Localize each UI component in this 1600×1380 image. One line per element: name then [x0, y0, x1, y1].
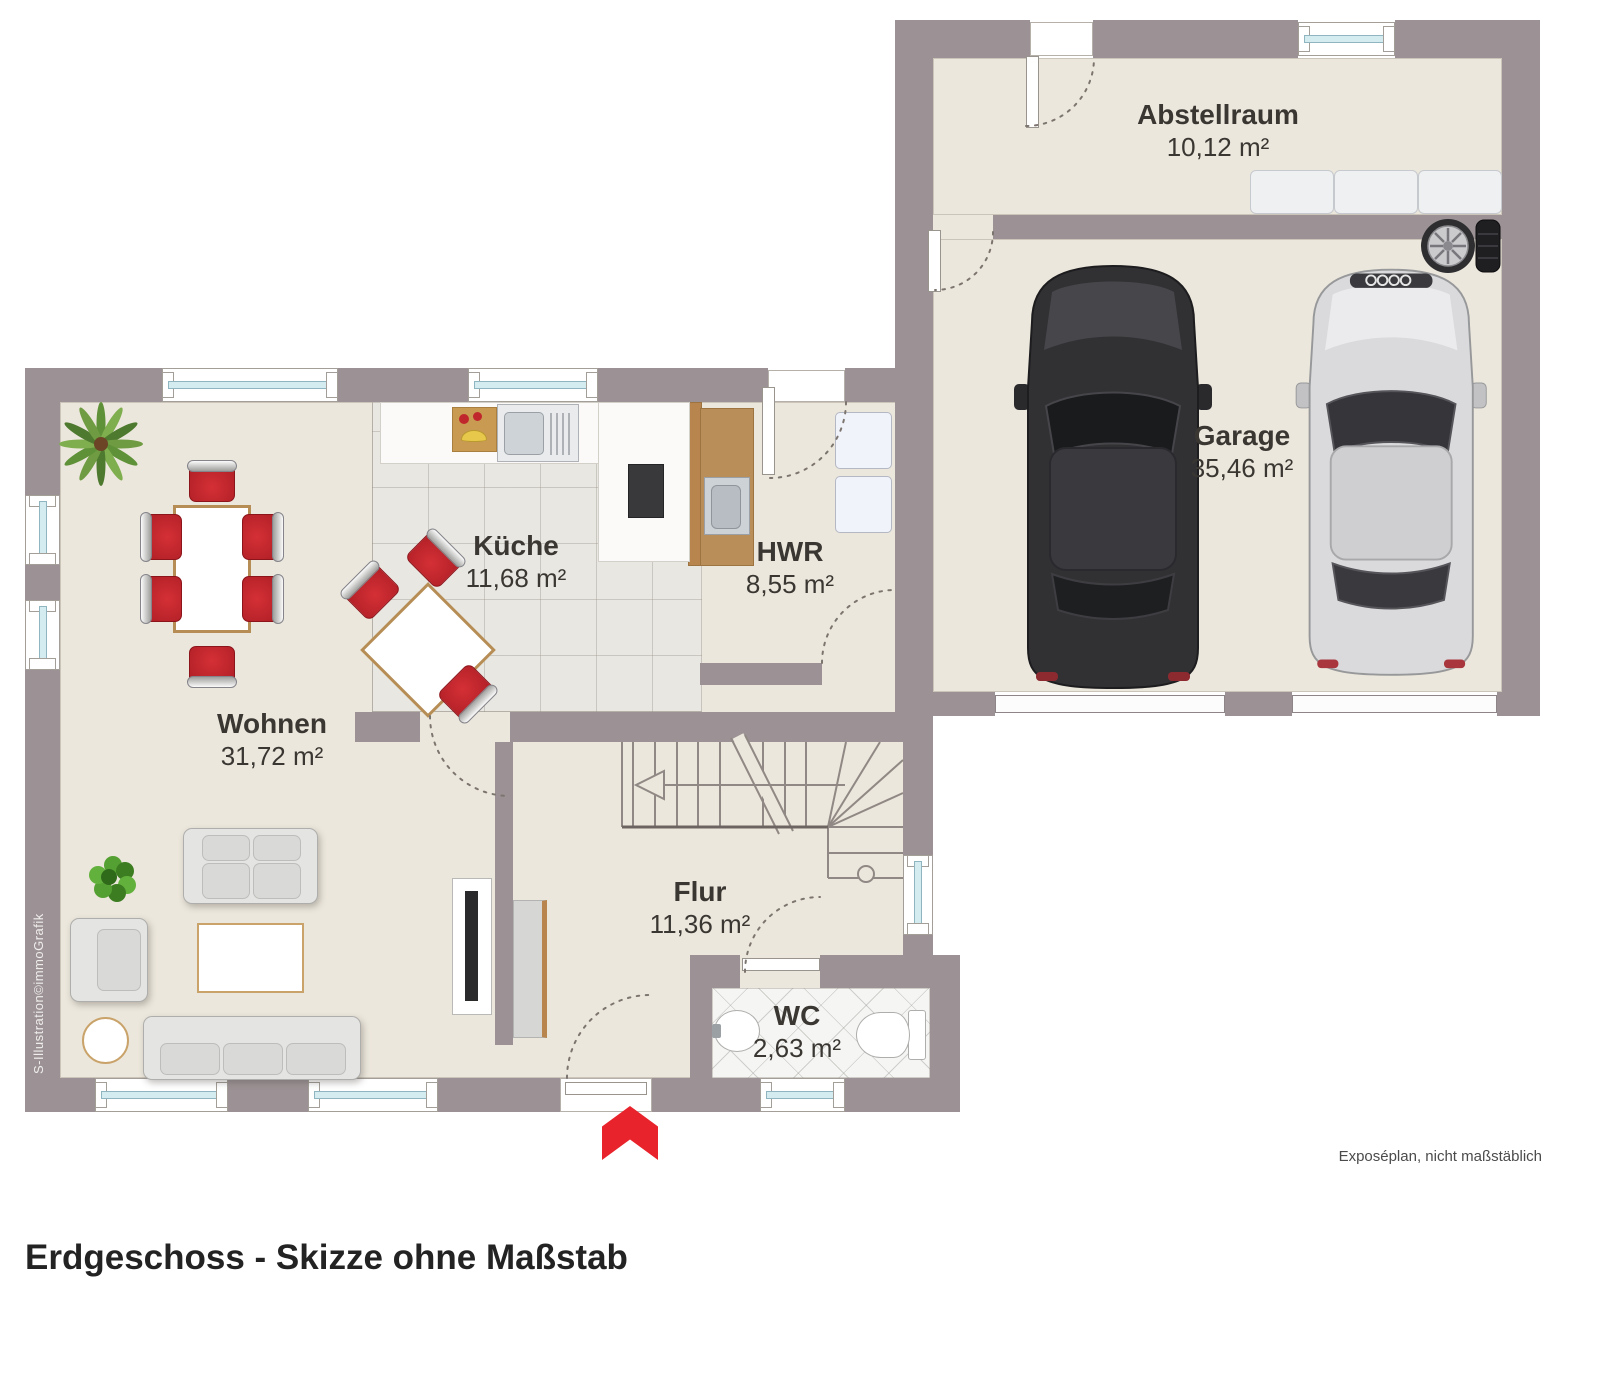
sofa-cushion: [253, 863, 301, 899]
coffee-table: [197, 923, 304, 993]
tv: [465, 891, 478, 1001]
drainboard-line: [550, 413, 552, 455]
dryer: [835, 476, 892, 533]
door-leaf-abstellraum: [1026, 56, 1039, 128]
wall: [25, 565, 60, 600]
dining-table: [173, 505, 251, 633]
room-name: Abstellraum: [1137, 98, 1299, 132]
room-label-wohnen: Wohnen 31,72 m²: [217, 707, 327, 773]
wall: [712, 955, 740, 988]
sink-bowl: [504, 412, 544, 455]
window-wohnen-left-2: [25, 600, 60, 670]
window-flur: [903, 855, 933, 935]
room-label-abstellraum: Abstellraum 10,12 m²: [1137, 98, 1299, 164]
room-label-hwr: HWR 8,55 m²: [746, 535, 834, 601]
window-wohnen-left-1: [25, 495, 60, 565]
sofa-cushion: [286, 1043, 346, 1075]
room-area: 11,68 m²: [466, 563, 567, 595]
banana: [461, 430, 487, 442]
hwr-sink: [704, 477, 750, 535]
room-name: Küche: [466, 529, 567, 563]
room-name: HWR: [746, 535, 834, 569]
shelf-box: [1418, 170, 1502, 214]
drainboard-line: [568, 413, 570, 455]
wall: [820, 955, 945, 988]
stove: [628, 464, 664, 518]
dining-chair: [189, 464, 235, 502]
sofa-three-seat: [143, 1016, 361, 1080]
wall: [25, 368, 60, 495]
room-area: 2,63 m²: [753, 1033, 841, 1065]
tomato: [459, 414, 469, 424]
window-wohnen-bottom-2: [308, 1078, 438, 1112]
page-title: Erdgeschoss - Skizze ohne Maßstab: [25, 1238, 628, 1278]
room-name: Wohnen: [217, 707, 327, 741]
wall: [845, 368, 933, 402]
toilet-bowl: [856, 1012, 910, 1058]
dining-chair: [242, 576, 280, 622]
window-wc: [760, 1078, 845, 1112]
hwr-sink-bowl: [711, 485, 741, 529]
sofa-two-seat: [183, 828, 318, 904]
door-leaf-hwr: [762, 387, 775, 475]
hall-cabinet: [513, 900, 547, 1038]
wall: [903, 935, 933, 955]
side-table: [82, 1017, 129, 1064]
drainboard-line: [562, 413, 564, 455]
door-leaf-garage: [928, 230, 941, 292]
cutting-board: [452, 407, 497, 452]
window-wohnen-top: [162, 368, 338, 402]
window-kueche: [468, 368, 598, 402]
room-area: 11,36 m²: [650, 909, 751, 941]
room-label-flur: Flur 11,36 m²: [650, 875, 751, 941]
tomato: [473, 412, 482, 421]
room-label-wc: WC 2,63 m²: [753, 999, 841, 1065]
kitchen-sink: [497, 404, 579, 462]
doorway-hwr-flur: [822, 663, 895, 685]
room-area: 31,72 m²: [217, 741, 327, 773]
wall: [338, 368, 468, 402]
floor-plan-page: Abstellraum 10,12 m² Garage 35,46 m² Küc…: [0, 0, 1600, 1380]
wall: [993, 215, 1502, 239]
wall: [495, 742, 513, 1045]
room-name: Flur: [650, 875, 751, 909]
wc-tap: [712, 1024, 721, 1038]
washing-machine: [835, 412, 892, 469]
tv-board: [452, 878, 492, 1015]
armchair-cushion: [97, 929, 141, 991]
shelf-box: [1250, 170, 1334, 214]
garage-door-right: [1292, 695, 1497, 713]
doorway-abstell-garage: [933, 215, 993, 239]
entrance-arrow-icon: [602, 1106, 658, 1160]
wall: [510, 712, 933, 742]
room-area: 35,46 m²: [1191, 453, 1294, 485]
door-sill-hwr: [768, 370, 845, 402]
wall: [903, 738, 933, 855]
drainboard-line: [556, 413, 558, 455]
sofa-cushion: [253, 835, 301, 861]
wall: [690, 955, 712, 1078]
wall: [690, 1078, 760, 1112]
wall: [438, 1078, 560, 1112]
toilet-tank: [908, 1010, 926, 1060]
door-sill-abstellraum: [1030, 22, 1093, 56]
wall: [930, 955, 960, 1112]
dining-chair: [144, 576, 182, 622]
room-area: 10,12 m²: [1137, 132, 1299, 164]
room-label-garage: Garage 35,46 m²: [1191, 419, 1294, 485]
room-area: 8,55 m²: [746, 569, 834, 601]
window-wohnen-bottom-1: [95, 1078, 228, 1112]
wall: [25, 1078, 95, 1112]
wall: [355, 712, 420, 742]
garage-door-left: [995, 695, 1225, 713]
wall: [598, 368, 768, 402]
room-name: WC: [753, 999, 841, 1033]
sofa-cushion: [223, 1043, 283, 1075]
dining-chair: [144, 514, 182, 560]
wall: [1093, 20, 1298, 58]
window-abstellraum: [1298, 22, 1395, 56]
dining-chair: [242, 514, 280, 560]
wall: [1502, 20, 1540, 716]
wall: [228, 1078, 308, 1112]
footer-note: Exposéplan, nicht maßstäblich: [1339, 1148, 1542, 1165]
wall: [1497, 692, 1540, 716]
wall: [700, 663, 822, 685]
entrance-door-leaf: [565, 1082, 647, 1095]
sofa-cushion: [202, 835, 250, 861]
shelf-box: [1334, 170, 1418, 214]
door-leaf-wc: [742, 958, 820, 971]
sofa-cushion: [160, 1043, 220, 1075]
room-label-kueche: Küche 11,68 m²: [466, 529, 567, 595]
dining-chair: [189, 646, 235, 684]
watermark: S-Illustration©immoGrafik: [31, 913, 46, 1074]
armchair: [70, 918, 148, 1002]
wall: [652, 1078, 690, 1112]
wall: [1225, 692, 1292, 716]
room-name: Garage: [1191, 419, 1294, 453]
sofa-cushion: [202, 863, 250, 899]
